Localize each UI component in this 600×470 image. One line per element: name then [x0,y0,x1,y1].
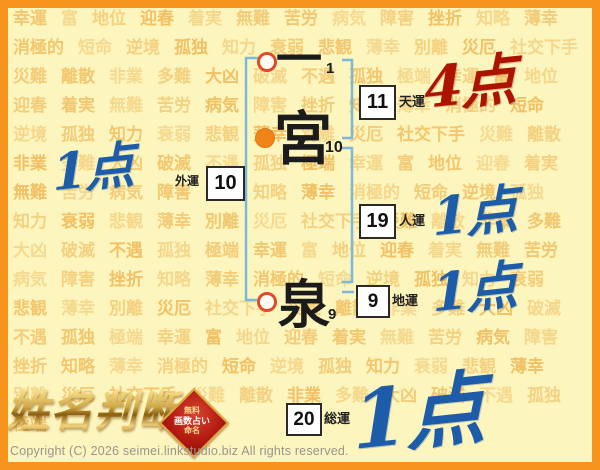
souun-score: 1点 [351,367,485,461]
jinun-label: 人運 [399,214,425,227]
tenun-score: 4点 [423,51,515,117]
gaiun-value-box: 10 [206,166,245,201]
name-char-2: 宮 [274,110,332,168]
ring-mark-icon [257,292,277,312]
souun-value-box: 20 [286,403,322,436]
copyright-text: Copyright (C) 2026 seimei.linkstudio.biz… [10,444,349,458]
tenun-value-box: 11 [359,85,396,120]
gaiun-score: 1点 [51,140,133,199]
badge-line-meimei: 命名 [184,426,200,436]
badge-line-kakusu: 画数占い [174,416,210,427]
name-char-3: 泉 [278,280,330,332]
chiun-label: 地運 [392,294,418,307]
chiun-score: 1点 [431,260,517,321]
stroke-count-3: 9 [328,307,336,322]
jinun-score: 1点 [431,184,517,245]
ring-mark-icon [257,52,277,72]
gaiun-label: 外運 [175,175,199,187]
souun-label: 総運 [324,412,350,425]
stroke-count-1: 1 [326,61,334,76]
site-logo[interactable]: 姓名判断 [6,389,182,436]
jinun-value-box: 19 [359,204,396,239]
stroke-count-2: 10 [325,140,343,156]
tenun-label: 天運 [399,95,425,108]
name-char-1: 一 [276,36,322,82]
filled-mark-icon [255,128,275,148]
seimei-result-screen: 幸運富地位迎春着実無難苦労病気障害挫折知略薄幸消極的短命逆境孤独知力衰弱悲観薄幸… [0,0,600,470]
chiun-value-box: 9 [356,285,390,318]
badge-line-free: 無料 [184,406,200,416]
